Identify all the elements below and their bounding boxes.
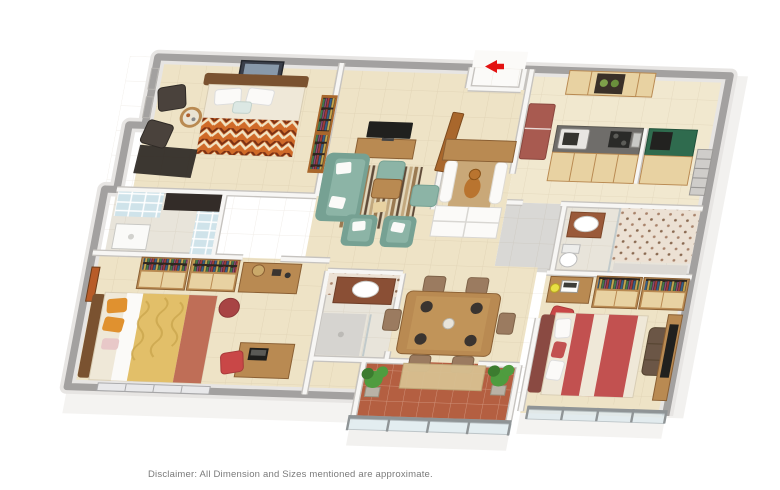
- deck-mat: [399, 363, 486, 390]
- lower-cabinets: [639, 155, 692, 185]
- ottoman: [376, 161, 406, 182]
- stool: [373, 201, 387, 213]
- television: [366, 121, 413, 139]
- ottoman: [410, 185, 440, 207]
- glass-brick-partition: [114, 191, 165, 217]
- upper-cabinets: [566, 71, 657, 98]
- accent-chair: [158, 84, 186, 112]
- wardrobe: [639, 278, 690, 311]
- lower-cabinets: [547, 152, 638, 183]
- wooden-canopy: [442, 139, 516, 162]
- patterned-tiles: [610, 208, 700, 264]
- dining-chair: [422, 276, 446, 293]
- orange-pillow: [106, 298, 127, 314]
- wardrobe: [186, 259, 240, 292]
- dining-chair: [496, 313, 516, 334]
- red-chair: [220, 350, 243, 374]
- dark-counter: [163, 193, 222, 212]
- hob: [608, 131, 632, 148]
- wardrobe: [592, 276, 643, 309]
- dining-table: [396, 291, 502, 357]
- zigzag-blanket: [196, 118, 299, 157]
- floorplan-render: [0, 0, 780, 490]
- white-pillow: [555, 318, 572, 338]
- floorplan-canvas: Disclaimer: All Dimension and Sizes ment…: [0, 0, 780, 490]
- dining-chair: [382, 309, 402, 330]
- armchair: [379, 215, 418, 247]
- armchair: [340, 214, 379, 246]
- orange-pillow: [101, 316, 125, 333]
- appliance: [650, 132, 673, 151]
- bed: [77, 292, 218, 383]
- dresser: [238, 262, 302, 293]
- desk: [546, 276, 593, 303]
- pink-pillow: [101, 338, 120, 350]
- vanity-washbasin: [333, 277, 396, 305]
- disclaimer-text: Disclaimer: All Dimension and Sizes ment…: [148, 469, 433, 480]
- wardrobe: [136, 257, 190, 290]
- dining-chair: [465, 277, 489, 294]
- bed: [527, 312, 648, 397]
- floor-mat: [133, 145, 197, 178]
- granite-counter: [553, 126, 644, 155]
- vanity-washbasin: [567, 212, 606, 238]
